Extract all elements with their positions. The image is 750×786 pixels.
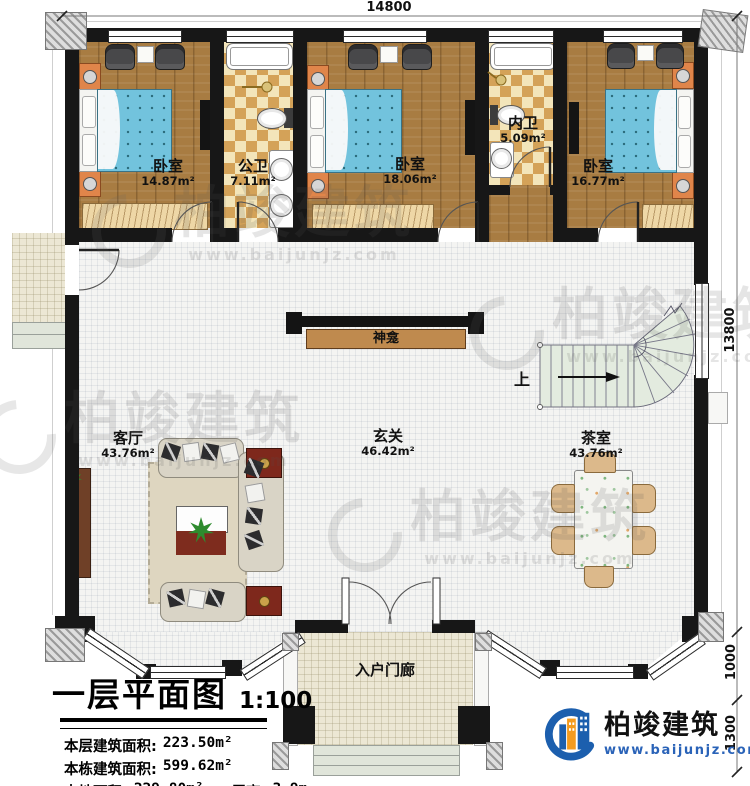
wall-h-6 [638, 228, 694, 242]
window-public-bath [226, 30, 294, 43]
hatch-sw [45, 628, 85, 662]
window-bedroom2 [343, 30, 427, 43]
logo-company: 柏竣建筑 [604, 712, 750, 739]
wall-left-lower [65, 295, 79, 618]
hatch-nw [45, 12, 87, 50]
tea-chair-bottom [584, 566, 614, 588]
plan-scale: 1:100 [239, 688, 312, 716]
bedroom2-headboard [307, 89, 327, 173]
bedroom2-chair-left [348, 44, 378, 70]
dim-right-porch: 1000 [724, 634, 738, 690]
bedroom2-nightstand-bottom [307, 172, 329, 199]
wall-right-upper [694, 42, 708, 285]
company-logo: 柏竣建筑 www.baijunjz.com [540, 703, 750, 767]
bedroom3-closet [642, 204, 694, 231]
room-area: 16.77m² [550, 175, 646, 188]
hatch-ne [698, 9, 749, 53]
bedroom3-nightstand-bottom [672, 172, 694, 199]
partition-2 [293, 42, 307, 242]
room-name: 玄关 [338, 428, 438, 445]
room-name: 入户门廊 [297, 662, 473, 679]
bedroom2-side-table [380, 46, 398, 63]
title-block: 一层平面图 1:100 本层建筑面积: 223.50m² 本栋建筑面积: 599… [52, 668, 312, 786]
room-label-inner-bath: 内卫 5.09m² [483, 115, 563, 145]
bedroom1-side-table [137, 46, 154, 63]
bedroom1-headboard [79, 89, 99, 172]
shrine-back [294, 316, 476, 327]
stat-value: 3.9m [272, 781, 307, 786]
bedroom1-chair-right [155, 44, 185, 70]
stat-value: 223.50m² [163, 735, 233, 756]
dim-right-total: 13800 [723, 300, 739, 360]
entry-porch-floor [297, 632, 473, 745]
bedroom1-chair-left [105, 44, 135, 70]
tea-table [574, 470, 633, 569]
bedroom1-closet [82, 203, 208, 230]
partition-1 [210, 42, 224, 242]
side-table-bottom [246, 586, 282, 616]
room-label-foyer: 玄关 46.42m² [338, 428, 438, 458]
window-bedroom1 [108, 30, 182, 43]
room-area: 43.76m² [78, 447, 178, 460]
logo-mark-icon [540, 703, 598, 767]
room-name: 卧室 [550, 158, 646, 175]
tea-chair-r2 [632, 526, 656, 555]
stat-row-2: 本栋建筑面积: 599.62m² [64, 758, 312, 779]
room-area: 18.06m² [360, 173, 460, 186]
room-label-tea: 茶室 43.76m² [546, 430, 646, 460]
public-bath-tub [226, 43, 293, 70]
bedroom1-wall-tv [200, 100, 210, 150]
tea-chair-l1 [551, 484, 575, 513]
room-label-living: 客厅 43.76m² [78, 430, 178, 460]
bedroom3-headboard [675, 89, 694, 173]
stat-label: 占地面积: [64, 781, 128, 786]
room-area: 5.09m² [483, 132, 563, 145]
stat-label: 本层建筑面积: [64, 735, 157, 756]
tea-chair-l2 [551, 526, 575, 555]
stat-row-3: 占地面积: 229.80m² 层高: 3.9m [64, 781, 312, 786]
window-bedroom3 [603, 30, 683, 43]
room-name: 客厅 [78, 430, 178, 447]
dim-top: 14800 [354, 0, 424, 15]
inner-bath-wall-l [489, 185, 510, 195]
bedroom3-side-table [637, 45, 654, 61]
room-name: 卧室 [118, 158, 218, 175]
hatch-se [698, 612, 724, 642]
inner-bath-basin [491, 148, 512, 169]
room-name: 内卫 [483, 115, 563, 132]
room-area: 46.42m² [338, 445, 438, 458]
wall-h-5 [567, 228, 598, 242]
room-name: 茶室 [546, 430, 646, 447]
window-bay-right-2 [556, 666, 634, 679]
stat-label: 层高: [232, 781, 267, 786]
bedroom1-nightstand-top [79, 63, 101, 91]
bedroom2-chair-right [402, 44, 432, 70]
stat-value: 229.80m² [134, 781, 204, 786]
wall-left-upper [65, 42, 79, 245]
title-underline [60, 718, 267, 729]
wall-right-lower [694, 375, 708, 618]
room-label-public-bath: 公卫 7.11m² [213, 158, 293, 188]
hatch-porch-right [475, 633, 492, 651]
porch-wall-left [295, 620, 348, 633]
logo-website: www.baijunjz.com [604, 743, 750, 758]
room-label-porch: 入户门廊 [297, 662, 473, 679]
wall-h-2 [212, 228, 238, 242]
room-label-bedroom3: 卧室 16.77m² [550, 158, 646, 188]
inner-bath-tub [490, 43, 556, 70]
shrine-shelf: 神龛 [306, 329, 466, 349]
window-inner-bath [488, 30, 554, 43]
room-area: 14.87m² [118, 175, 218, 188]
hatch-column-right [486, 742, 503, 770]
bedroom3-chair-left [607, 43, 635, 69]
room-name: 卧室 [360, 156, 460, 173]
stat-row-1: 本层建筑面积: 223.50m² [64, 735, 312, 756]
stat-label: 本栋建筑面积: [64, 758, 157, 779]
stair-up-label: 上 [514, 366, 530, 390]
wall-h-4 [478, 228, 489, 242]
tea-chair-r1 [632, 484, 656, 513]
porch-column-right [458, 706, 490, 744]
bedroom1-nightstand-bottom [79, 170, 101, 197]
porch-wall-right [432, 620, 475, 633]
public-bath-toilet [257, 108, 287, 129]
bedroom2-wall-tv [465, 100, 475, 155]
floor-plan-canvas: 神龛 [0, 0, 750, 786]
porch-step-3 [313, 765, 460, 776]
plan-title: 一层平面图 [52, 668, 227, 716]
ac-ledge [708, 392, 728, 424]
room-area: 7.11m² [213, 175, 293, 188]
bedroom2-closet [312, 204, 434, 230]
window-stair [695, 283, 709, 379]
stat-value: 599.62m² [163, 758, 233, 779]
room-label-bedroom1: 卧室 14.87m² [118, 158, 218, 188]
bedroom3-chair-right [656, 43, 684, 69]
room-area: 43.76m² [546, 447, 646, 460]
room-label-bedroom2: 卧室 18.06m² [360, 156, 460, 186]
hatch-porch-left [282, 633, 299, 651]
side-porch-step-2 [12, 334, 67, 349]
wall-h-3 [278, 228, 438, 242]
public-bath-basin-2 [270, 194, 293, 217]
side-porch-floor [12, 233, 65, 323]
shrine-label: 神龛 [373, 331, 399, 346]
bedroom3-wall-tv [569, 102, 579, 154]
room-name: 公卫 [213, 158, 293, 175]
wall-h-1 [79, 228, 172, 242]
